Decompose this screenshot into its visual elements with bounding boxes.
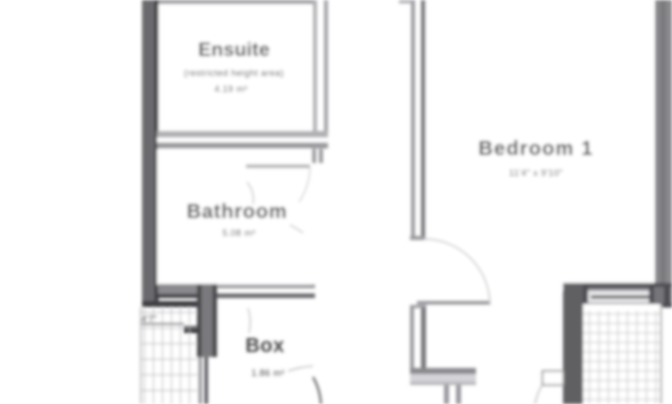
svg-text:4.19 m²: 4.19 m² <box>214 84 247 94</box>
svg-text:11'4" x 9'10": 11'4" x 9'10" <box>509 168 563 178</box>
svg-text:(restricted height area): (restricted height area) <box>184 68 284 78</box>
svg-text:Box: Box <box>245 335 284 357</box>
svg-text:5.08 m²: 5.08 m² <box>222 228 255 238</box>
svg-text:Bathroom: Bathroom <box>187 201 288 223</box>
svg-text:1.86 m²: 1.86 m² <box>251 368 284 378</box>
svg-text:4'7": 4'7" <box>141 314 157 325</box>
svg-text:Ensuite: Ensuite <box>198 39 270 61</box>
svg-text:Bedroom 1: Bedroom 1 <box>478 138 593 160</box>
